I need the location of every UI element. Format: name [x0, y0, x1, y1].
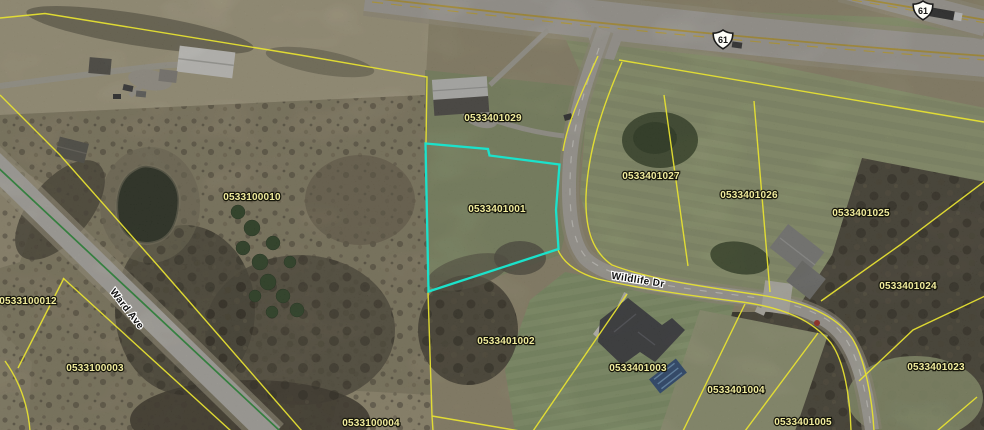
parcel-label: 0533401025	[832, 208, 890, 219]
parcel-label: 0533401004	[707, 385, 765, 396]
parcel-label: 0533401005	[774, 417, 832, 428]
parcel-label: 0533401023	[907, 362, 965, 373]
parcel-label: 0533401026	[720, 190, 778, 201]
parcel-label: 0533401003	[609, 363, 667, 374]
parcel-label: 0533100010	[223, 192, 281, 203]
parcel-label: 0533100004	[342, 418, 400, 429]
parcel-label: 0533401002	[477, 336, 535, 347]
parcel-label: 0533100012	[0, 296, 57, 307]
parcel-label: 0533401024	[879, 281, 937, 292]
selected-parcel-label: 0533401001	[468, 204, 526, 215]
parcel-label: 0533401029	[464, 113, 522, 124]
parcel-label: 0533401027	[622, 171, 680, 182]
route-61-number: 61	[718, 35, 728, 45]
aerial-map-svg[interactable]: 0533401029 0533401027 0533401026 0533401…	[0, 0, 984, 430]
route-61-number: 61	[918, 6, 928, 16]
map-viewport[interactable]: 0533401029 0533401027 0533401026 0533401…	[0, 0, 984, 430]
parcel-label: 0533100003	[66, 363, 124, 374]
